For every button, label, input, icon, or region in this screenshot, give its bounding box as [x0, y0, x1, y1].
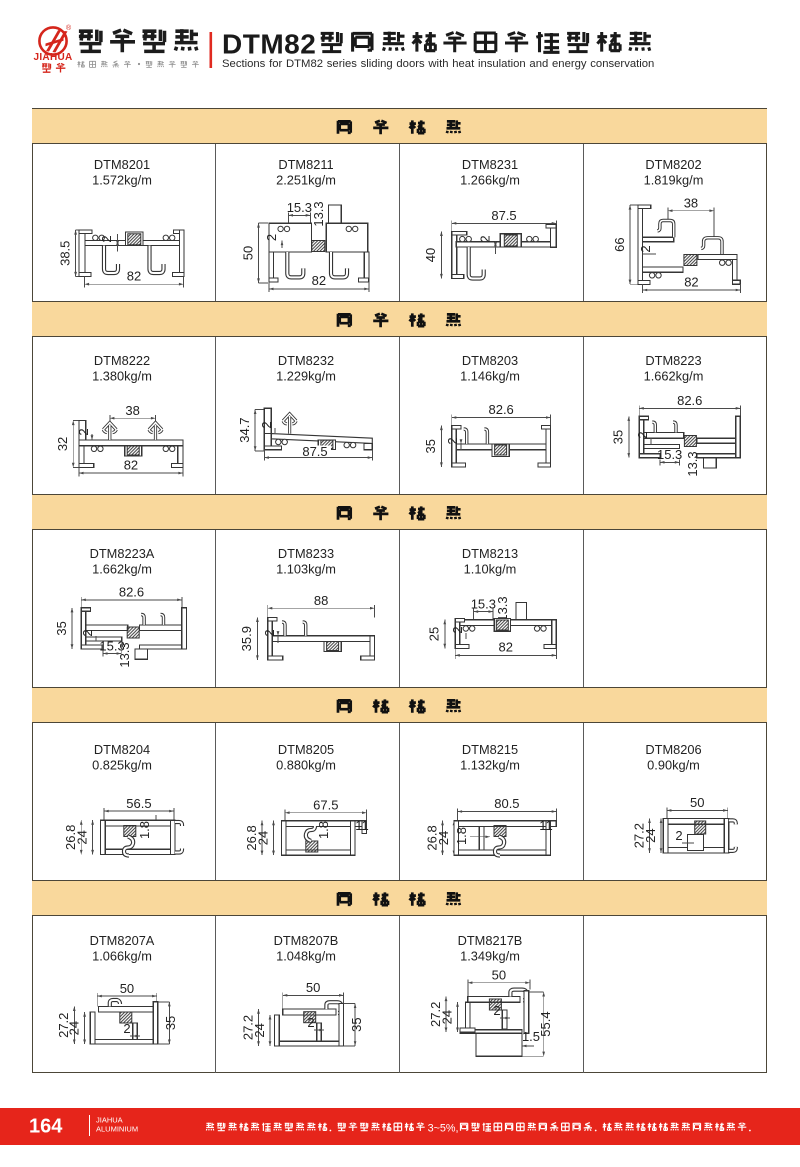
svg-text:40: 40: [423, 248, 438, 262]
svg-text:DTM8217B: DTM8217B: [458, 933, 523, 948]
svg-text:35: 35: [54, 621, 69, 635]
svg-text:2: 2: [123, 1021, 130, 1036]
svg-text:2: 2: [264, 234, 279, 241]
svg-text:2: 2: [445, 437, 460, 444]
svg-text:82: 82: [124, 457, 138, 472]
svg-text:38: 38: [684, 196, 698, 211]
svg-text:DTM8207A: DTM8207A: [90, 933, 155, 948]
svg-text:2: 2: [493, 1003, 500, 1018]
svg-text:1.5: 1.5: [522, 1029, 540, 1044]
svg-text:34.7: 34.7: [237, 417, 252, 442]
svg-text:DTM8203: DTM8203: [462, 353, 518, 368]
svg-text:32: 32: [55, 437, 70, 451]
svg-text:DTM8232: DTM8232: [278, 353, 334, 368]
svg-text:ALUMINIUM: ALUMINIUM: [96, 1125, 138, 1134]
svg-text:DTM8231: DTM8231: [462, 157, 518, 172]
svg-text:15.3: 15.3: [657, 447, 682, 462]
svg-text:164: 164: [29, 1116, 63, 1138]
svg-text:56.5: 56.5: [126, 796, 151, 811]
svg-text:2: 2: [450, 626, 465, 633]
svg-text:11: 11: [539, 818, 553, 833]
svg-text:1.066kg/m: 1.066kg/m: [92, 949, 152, 964]
svg-text:1.132kg/m: 1.132kg/m: [460, 758, 520, 773]
svg-text:1.8: 1.8: [316, 821, 331, 839]
svg-text:2: 2: [675, 828, 682, 843]
svg-text:87.5: 87.5: [491, 208, 516, 223]
svg-text:13.3: 13.3: [495, 596, 510, 621]
svg-text:0.90kg/m: 0.90kg/m: [647, 758, 700, 773]
svg-text:24: 24: [74, 830, 89, 844]
svg-text:1.266kg/m: 1.266kg/m: [460, 173, 520, 188]
svg-text:2: 2: [76, 428, 91, 435]
svg-text:DTM8223: DTM8223: [645, 353, 701, 368]
svg-text:2: 2: [307, 1015, 314, 1030]
svg-text:82.6: 82.6: [119, 585, 144, 600]
svg-text:DTM8204: DTM8204: [94, 742, 150, 757]
svg-text:24: 24: [255, 831, 270, 845]
svg-text:50: 50: [690, 795, 704, 810]
svg-text:2: 2: [638, 245, 653, 252]
svg-text:38.5: 38.5: [57, 241, 72, 266]
svg-text:35: 35: [423, 439, 438, 453]
svg-text:38: 38: [125, 403, 139, 418]
svg-text:35.9: 35.9: [239, 626, 254, 651]
svg-text:DTM8213: DTM8213: [462, 546, 518, 561]
svg-text:DTM8233: DTM8233: [278, 546, 334, 561]
svg-text:DTM82: DTM82: [222, 29, 316, 60]
svg-text:13.3: 13.3: [311, 201, 326, 226]
svg-text:DTM8207B: DTM8207B: [274, 933, 339, 948]
svg-text:66: 66: [612, 237, 627, 251]
svg-text:15.3: 15.3: [287, 200, 312, 215]
svg-text:DTM8202: DTM8202: [645, 157, 701, 172]
svg-text:1.662kg/m: 1.662kg/m: [644, 369, 704, 384]
svg-text:1.10kg/m: 1.10kg/m: [464, 562, 517, 577]
svg-text:2: 2: [99, 235, 114, 242]
svg-text:DTM8215: DTM8215: [462, 742, 518, 757]
svg-text:50: 50: [306, 980, 320, 995]
svg-text:88: 88: [314, 593, 328, 608]
svg-text:35: 35: [349, 1017, 364, 1031]
svg-text:1.103kg/m: 1.103kg/m: [276, 562, 336, 577]
svg-text:50: 50: [120, 981, 134, 996]
svg-text:13.3: 13.3: [685, 451, 700, 476]
svg-text:50: 50: [240, 246, 255, 260]
svg-text:82: 82: [312, 273, 326, 288]
svg-text:24: 24: [252, 1023, 267, 1037]
svg-text:67.5: 67.5: [313, 797, 338, 812]
svg-text:DTM8211: DTM8211: [278, 157, 333, 172]
svg-text:1.380kg/m: 1.380kg/m: [92, 369, 152, 384]
svg-text:25: 25: [427, 627, 442, 641]
svg-text:82.6: 82.6: [488, 402, 513, 417]
svg-text:1.048kg/m: 1.048kg/m: [276, 949, 336, 964]
svg-text:24: 24: [643, 828, 658, 842]
svg-text:2.251kg/m: 2.251kg/m: [276, 173, 336, 188]
svg-text:1.8: 1.8: [137, 821, 152, 839]
svg-text:1.229kg/m: 1.229kg/m: [276, 369, 336, 384]
svg-text:1.8: 1.8: [454, 827, 469, 845]
svg-text:82: 82: [499, 640, 513, 655]
svg-text:1.572kg/m: 1.572kg/m: [92, 173, 152, 188]
svg-text:0.880kg/m: 0.880kg/m: [276, 758, 336, 773]
svg-text:24: 24: [439, 1010, 454, 1024]
svg-text:2: 2: [259, 421, 274, 428]
svg-text:50: 50: [492, 967, 506, 982]
svg-text:82.6: 82.6: [677, 393, 702, 408]
svg-text:DTM8222: DTM8222: [94, 353, 150, 368]
svg-text:DTM8201: DTM8201: [94, 157, 150, 172]
svg-text:1.662kg/m: 1.662kg/m: [92, 562, 152, 577]
svg-text:35: 35: [163, 1016, 178, 1030]
svg-text:DTM8223A: DTM8223A: [90, 546, 155, 561]
svg-text:24: 24: [436, 831, 451, 845]
svg-text:87.5: 87.5: [302, 444, 327, 459]
svg-text:55.4: 55.4: [538, 1011, 553, 1036]
svg-text:35: 35: [611, 430, 626, 444]
svg-text:15.3: 15.3: [471, 596, 496, 611]
svg-text:2: 2: [478, 235, 493, 242]
svg-text:11: 11: [355, 818, 369, 833]
svg-text:1.819kg/m: 1.819kg/m: [644, 173, 704, 188]
svg-text:Sections for DTM82 series slid: Sections for DTM82 series sliding doors …: [222, 58, 654, 70]
svg-text:82: 82: [684, 274, 698, 289]
svg-text:80.5: 80.5: [494, 796, 519, 811]
svg-text:2: 2: [262, 629, 277, 636]
svg-text:2: 2: [635, 431, 650, 438]
svg-text:82: 82: [127, 269, 141, 284]
svg-text:1.349kg/m: 1.349kg/m: [460, 949, 520, 964]
svg-text:0.825kg/m: 0.825kg/m: [92, 758, 152, 773]
svg-text:1.146kg/m: 1.146kg/m: [460, 369, 520, 384]
svg-text:15.3: 15.3: [99, 638, 124, 653]
svg-text:JIAHUA: JIAHUA: [96, 1116, 123, 1125]
svg-text:DTM8205: DTM8205: [278, 742, 334, 757]
svg-text:3~5%,: 3~5%,: [428, 1123, 459, 1135]
svg-text:DTM8206: DTM8206: [645, 742, 701, 757]
svg-text:24: 24: [66, 1021, 81, 1035]
svg-text:2: 2: [80, 629, 95, 636]
